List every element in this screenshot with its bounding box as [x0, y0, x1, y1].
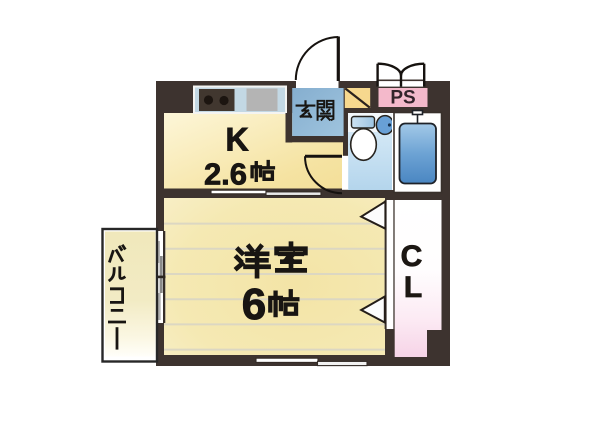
- svg-text:PS: PS: [390, 88, 415, 109]
- svg-text:K: K: [225, 122, 248, 158]
- svg-text:2.6: 2.6: [204, 157, 247, 192]
- svg-text:6: 6: [242, 280, 266, 329]
- svg-text:C: C: [401, 240, 423, 273]
- svg-text:L: L: [404, 271, 422, 304]
